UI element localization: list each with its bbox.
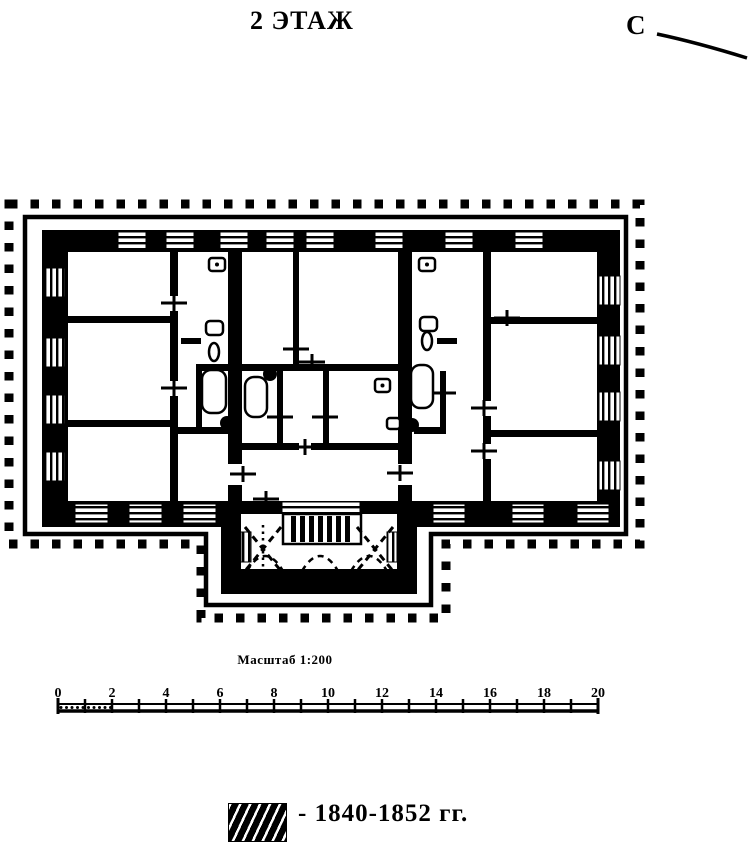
svg-text:4: 4 — [163, 686, 170, 701]
svg-text:10: 10 — [321, 686, 335, 701]
svg-text:12: 12 — [375, 686, 389, 701]
legend-label: - 1840-1852 гг. — [298, 800, 468, 828]
scanned-floor-plan-page: 2 ЭТАЖ С — [0, 0, 749, 845]
svg-text:2: 2 — [109, 686, 116, 701]
svg-text:14: 14 — [429, 686, 443, 701]
window-openings — [44, 232, 620, 523]
svg-text:6: 6 — [217, 686, 224, 701]
interior-walls — [68, 252, 598, 501]
svg-text:16: 16 — [483, 686, 497, 701]
scale-caption: Масштаб 1:200 — [185, 652, 385, 668]
scale-ruler: 02468101214161820 — [55, 686, 606, 714]
entrance-stairs — [241, 514, 397, 571]
legend-hatch-swatch — [228, 803, 287, 842]
svg-text:8: 8 — [271, 686, 278, 701]
floor-plan-drawing: 02468101214161820 — [0, 0, 749, 845]
north-arrow-line — [657, 34, 747, 58]
svg-text:18: 18 — [537, 686, 551, 701]
porch-separating-wall — [241, 501, 397, 514]
